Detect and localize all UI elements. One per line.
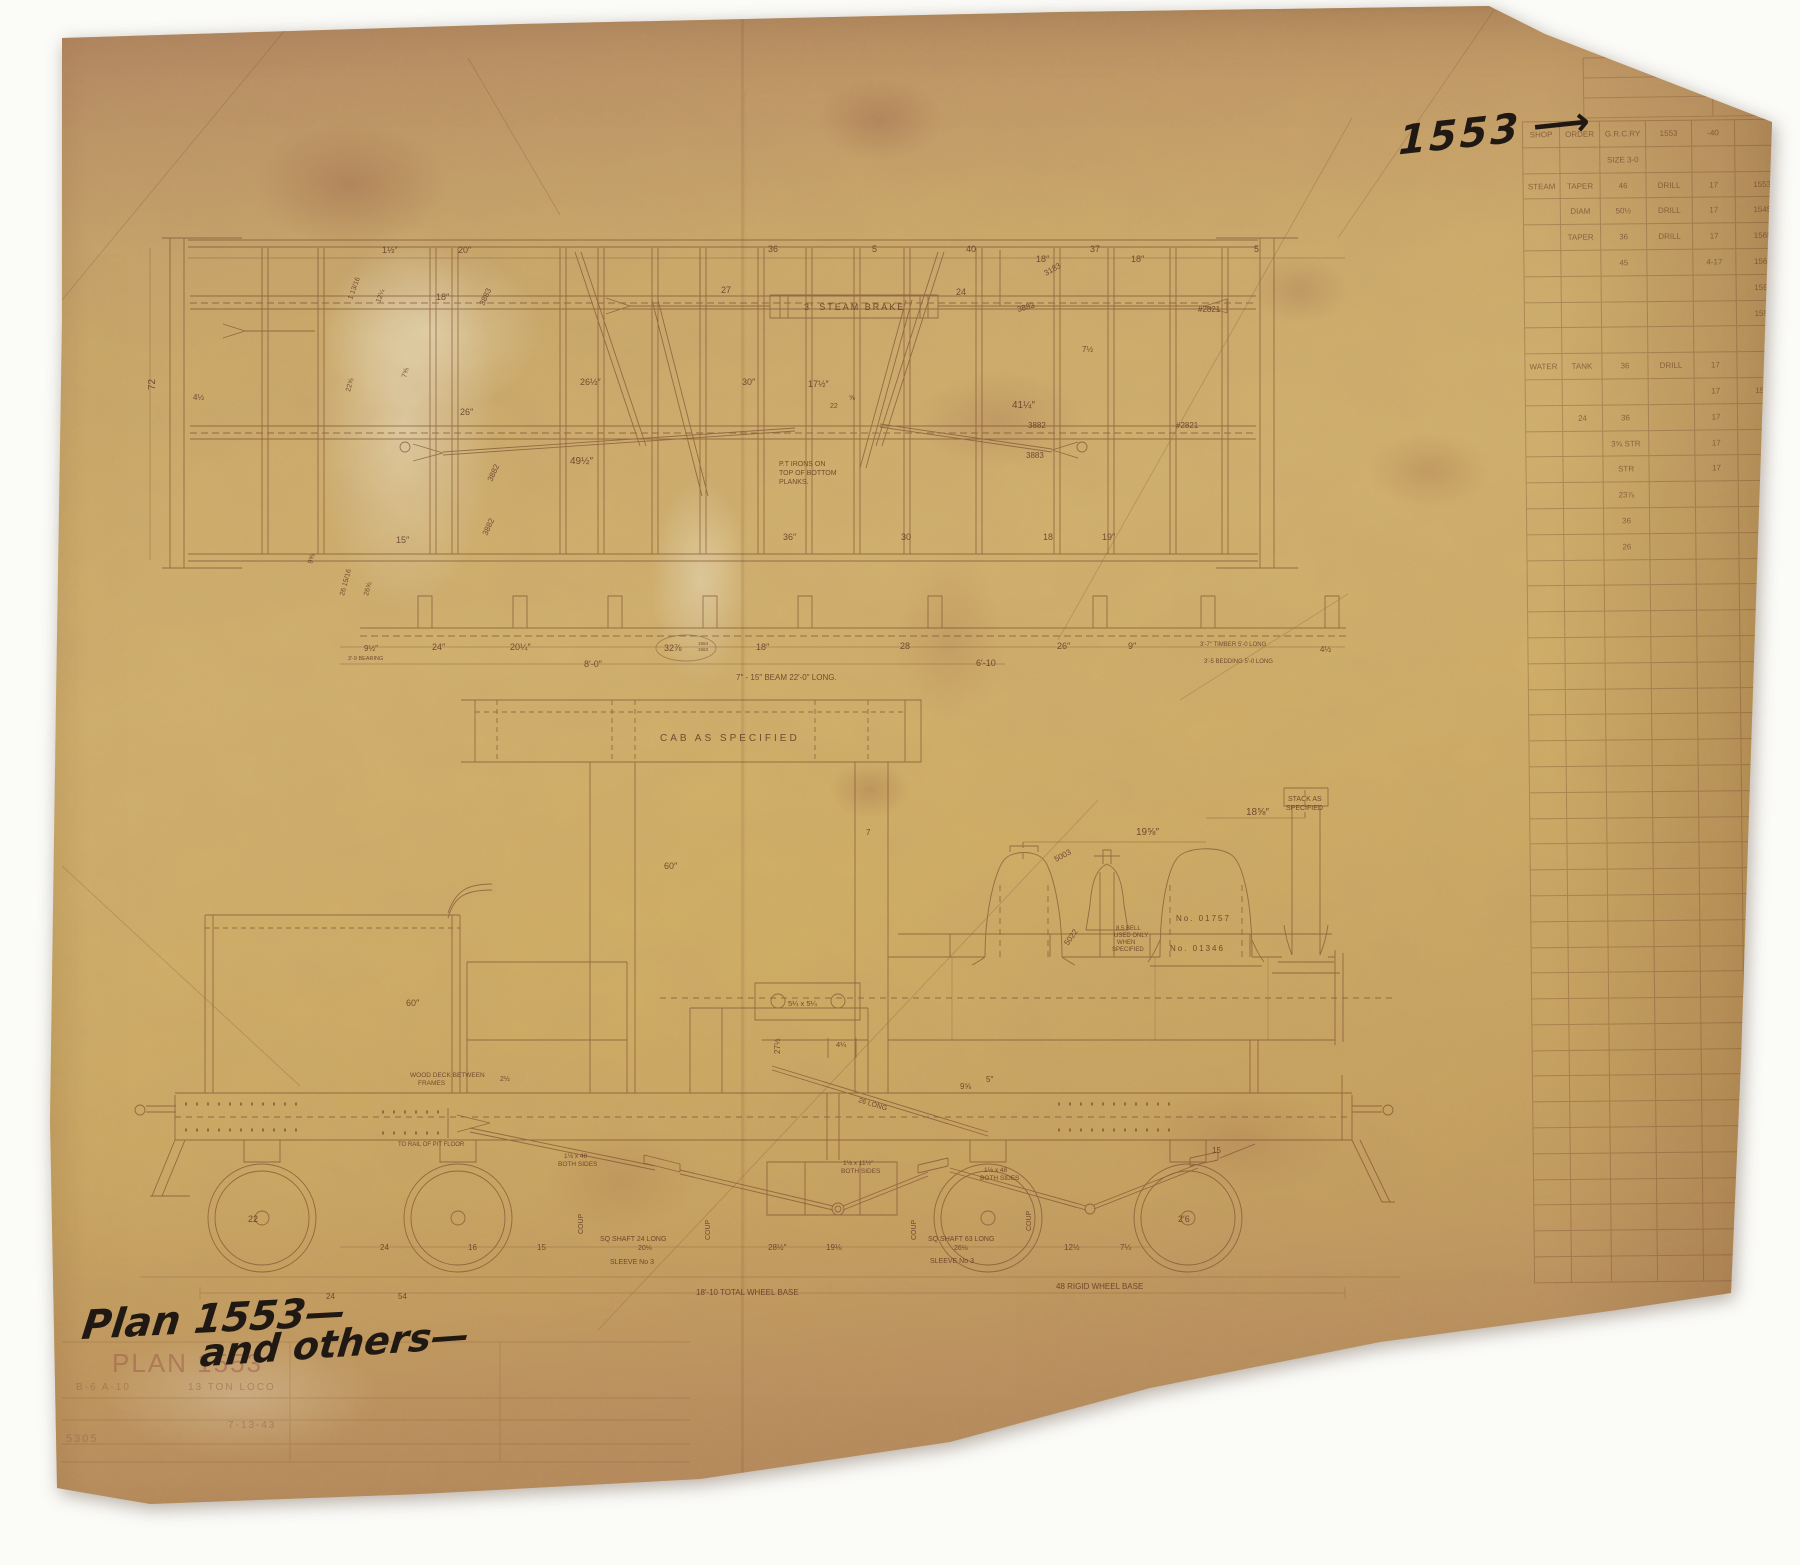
- table-cell: [1698, 713, 1741, 738]
- dimension-label: B-6 A-10: [76, 1382, 131, 1393]
- table-cell: [1525, 432, 1563, 457]
- table-cell: [1651, 585, 1697, 610]
- dimension-label: 60″: [664, 861, 678, 871]
- dimension-label: 8.5 BELL: [1116, 926, 1141, 932]
- table-cell: 45: [1601, 250, 1647, 275]
- table-cell: [1534, 1257, 1572, 1282]
- table-cell: [1564, 509, 1604, 534]
- dimension-label: 30″: [742, 377, 756, 387]
- dimension-label: COUP: [705, 1219, 712, 1240]
- table-cell: [1700, 920, 1743, 945]
- table-cell: [1569, 999, 1609, 1024]
- table-cell: [1605, 637, 1651, 662]
- table-row: 243617: [1525, 403, 1792, 432]
- table-cell: [1562, 276, 1602, 301]
- table-cell: [1608, 869, 1654, 894]
- dimension-label: 5¼ x 5¼: [788, 999, 818, 1008]
- dimension-label: 24: [380, 1243, 389, 1252]
- table-row: [1527, 584, 1794, 613]
- table-cell: [1745, 1100, 1799, 1125]
- dimension-label: 60″: [406, 998, 420, 1008]
- dimension-label: 1563: [698, 647, 709, 652]
- table-cell: [1525, 457, 1563, 482]
- table-cell: [1713, 76, 1795, 96]
- dimension-label: SLEEVE No 3: [610, 1259, 654, 1266]
- dimension-label: 5003: [1053, 847, 1073, 864]
- table-cell: [1702, 1126, 1745, 1151]
- table-cell: [1564, 483, 1604, 508]
- table-cell: DIAM: [1561, 199, 1601, 224]
- table-cell: [1648, 327, 1694, 352]
- table-cell: [1653, 766, 1699, 791]
- table-cell: [1745, 1048, 1799, 1073]
- dimension-label: 3′-7″ TIMBER 5′-0 LONG: [1200, 642, 1267, 648]
- table-cell: [1528, 690, 1566, 715]
- table-cell: [1696, 533, 1739, 558]
- table-cell: [1743, 919, 1797, 944]
- table-cell: [1654, 920, 1700, 945]
- table-cell: 36: [1602, 353, 1648, 378]
- table-row: [1527, 610, 1794, 639]
- table-cell: [1692, 146, 1735, 171]
- dimension-label: 3883: [478, 286, 494, 306]
- table-cell: [1533, 1205, 1571, 1230]
- table-cell: [1656, 1049, 1702, 1074]
- crease-lines: [62, 10, 1494, 1330]
- table-cell: [1698, 662, 1741, 687]
- dimension-label: 24″: [432, 642, 446, 652]
- table-row: [1532, 1074, 1799, 1103]
- dimension-label: 49½″: [570, 456, 593, 467]
- dimension-label: 5: [1254, 244, 1259, 254]
- dimension-label: 5: [872, 244, 877, 254]
- dimension-label: 18: [1043, 532, 1053, 542]
- table-cell: [1566, 715, 1606, 740]
- table-cell: [1742, 842, 1796, 867]
- table-cell: [1657, 1178, 1703, 1203]
- table-row: [1527, 558, 1794, 587]
- table-cell: [1607, 766, 1653, 791]
- dimension-label: SPECIFIED: [1112, 947, 1144, 953]
- dimension-label: 3882: [1028, 421, 1046, 430]
- table-cell: [1655, 946, 1701, 971]
- dimension-label: 6′-10: [976, 658, 996, 668]
- table-cell: [1738, 403, 1792, 428]
- table-cell: [1602, 302, 1648, 327]
- table-cell: [1737, 352, 1791, 377]
- table-cell: [1701, 946, 1744, 971]
- table-cell: [1697, 585, 1740, 610]
- dimension-label: TO RAIL OF PIT FLOOR: [398, 1142, 465, 1148]
- table-row: WATERTANK36DRILL17: [1524, 352, 1791, 381]
- table-cell: 1565: [1736, 223, 1790, 248]
- table-cell: [1602, 276, 1648, 301]
- dimension-label: BOTH SIDES: [558, 1161, 598, 1168]
- table-cell: [1699, 842, 1742, 867]
- table-cell: [1650, 533, 1696, 558]
- dimension-label: 22⅝: [345, 377, 355, 392]
- dimension-label: 3′ STEAM BRAKE: [804, 302, 905, 312]
- table-row: [1533, 1203, 1800, 1232]
- table-cell: [1527, 561, 1565, 586]
- table-cell: 36: [1601, 224, 1647, 249]
- table-cell: [1571, 1153, 1611, 1178]
- dimension-label: SQ SHAFT 63 LONG: [928, 1236, 994, 1243]
- table-cell: 1543: [1738, 378, 1792, 403]
- table-cell: [1650, 508, 1696, 533]
- dimension-label: WHEN: [1117, 940, 1135, 946]
- table-row: [1532, 1048, 1799, 1077]
- plan-dimension-labels: 1½″20″3654037518″273′ STEAM BRAKE2418″18…: [147, 244, 1331, 682]
- dimension-label: 7″ - 15″ BEAM 22′-0″ LONG.: [736, 673, 837, 682]
- table-cell: [1533, 1154, 1571, 1179]
- table-cell: [1746, 1203, 1800, 1228]
- table-cell: [1565, 638, 1605, 663]
- dimension-label: 26″: [1057, 641, 1071, 651]
- table-cell: 17: [1692, 172, 1735, 197]
- table-cell: 1561: [1736, 249, 1790, 274]
- table-cell: 23⅞: [1604, 482, 1650, 507]
- table-cell: 17: [1695, 456, 1738, 481]
- table-cell: [1530, 896, 1568, 921]
- arrow-icon: ⟶: [1531, 98, 1596, 150]
- table-cell: [1560, 147, 1600, 172]
- dimension-label: WOOD DECK BETWEEN: [410, 1072, 485, 1079]
- table-cell: [1696, 507, 1739, 532]
- table-cell: [1568, 921, 1608, 946]
- table-cell: [1703, 1178, 1746, 1203]
- table-cell: [1609, 972, 1655, 997]
- table-cell: [1562, 328, 1602, 353]
- dimension-label: COUP: [1026, 1210, 1033, 1231]
- dimension-label: 3882: [481, 516, 497, 536]
- table-cell: [1651, 559, 1697, 584]
- table-cell: [1526, 483, 1564, 508]
- table-cell: [1524, 277, 1562, 302]
- table-cell: [1701, 971, 1744, 996]
- table-row: [1528, 739, 1795, 768]
- table-cell: 17: [1693, 223, 1736, 248]
- dimension-label: 26 15/16: [339, 568, 353, 596]
- table-cell: [1742, 765, 1796, 790]
- dimension-label: 1½″: [382, 245, 399, 255]
- table-cell: [1608, 895, 1654, 920]
- table-cell: [1611, 1153, 1657, 1178]
- table-cell: [1702, 1075, 1745, 1100]
- table-row: 1592: [1524, 274, 1791, 303]
- table-cell: [1739, 532, 1793, 557]
- table-cell: [1699, 817, 1742, 842]
- dimension-label: 40: [966, 244, 976, 254]
- table-cell: [1700, 868, 1743, 893]
- table-cell: [1605, 560, 1651, 585]
- table-cell: [1704, 1255, 1747, 1280]
- table-row: [1531, 945, 1798, 974]
- dimension-label: 12½: [1064, 1243, 1080, 1252]
- table-cell: [1569, 973, 1609, 998]
- table-cell: [1607, 792, 1653, 817]
- table-cell: [1652, 662, 1698, 687]
- table-cell: [1655, 972, 1701, 997]
- table-cell: [1572, 1257, 1612, 1282]
- dimension-label: 22: [248, 1214, 258, 1224]
- dimension-label: 32⅞: [664, 643, 682, 653]
- table-cell: [1529, 767, 1567, 792]
- table-cell: [1609, 998, 1655, 1023]
- table-cell: 1553: [1735, 171, 1789, 196]
- table-cell: [1742, 816, 1796, 841]
- table-cell: [1651, 637, 1697, 662]
- dimension-label: 1⅛ x 48: [984, 1167, 1008, 1174]
- table-cell: [1741, 739, 1795, 764]
- table-cell: [1607, 818, 1653, 843]
- table-cell: [1648, 275, 1694, 300]
- dimension-label: 19″: [1102, 532, 1116, 542]
- table-cell: [1650, 482, 1696, 507]
- page-background: { "annotations": { "top_right_number": "…: [0, 0, 1800, 1565]
- dimension-label: 20¼″: [510, 642, 532, 652]
- table-cell: [1741, 713, 1795, 738]
- table-row: DIAM50½DRILL171545: [1523, 197, 1790, 226]
- table-cell: [1563, 380, 1603, 405]
- dimension-label: 24: [956, 287, 966, 297]
- table-cell: [1568, 895, 1608, 920]
- dimension-label: 7¼: [1120, 1243, 1131, 1252]
- table-cell: 1593: [1737, 300, 1791, 325]
- dimension-label: 27½: [773, 1038, 782, 1054]
- dimension-label: 18″: [1036, 254, 1050, 264]
- dimension-label: 28: [900, 641, 910, 651]
- table-row: [1532, 1100, 1799, 1129]
- table-row: [1524, 326, 1791, 355]
- table-cell: [1570, 1128, 1610, 1153]
- table-cell: [1565, 612, 1605, 637]
- table-cell: [1653, 791, 1699, 816]
- table-cell: [1561, 251, 1601, 276]
- dimension-label: BOTH SIDES: [980, 1175, 1020, 1182]
- table-cell: [1658, 1230, 1704, 1255]
- table-row: [1531, 1022, 1798, 1051]
- table-cell: [1703, 1204, 1746, 1229]
- table-cell: [1735, 145, 1789, 170]
- table-cell: [1747, 1229, 1800, 1254]
- dimension-label: 19⅛: [826, 1243, 842, 1252]
- table-cell: [1610, 1076, 1656, 1101]
- table-cell: [1523, 225, 1561, 250]
- table-cell: [1657, 1204, 1703, 1229]
- table-cell: [1743, 868, 1797, 893]
- table-cell: [1653, 817, 1699, 842]
- table-cell: [1740, 558, 1794, 583]
- table-cell: [1646, 146, 1692, 171]
- table-row: [1529, 816, 1796, 845]
- table-cell: DRILL: [1648, 353, 1694, 378]
- table-cell: [1570, 1076, 1610, 1101]
- table-cell: SIZE 3-0: [1600, 147, 1646, 172]
- dimension-label: No. 01346: [1170, 944, 1225, 953]
- dimension-label: SQ SHAFT 24 LONG: [600, 1236, 666, 1243]
- table-cell: [1651, 611, 1697, 636]
- dimension-label: 5″: [986, 1075, 993, 1084]
- table-cell: [1531, 999, 1569, 1024]
- table-cell: STR: [1603, 456, 1649, 481]
- table-cell: 3⅝ STR: [1603, 431, 1649, 456]
- table-cell: [1698, 739, 1741, 764]
- table-cell: [1746, 1177, 1800, 1202]
- table-cell: DRILL: [1647, 198, 1693, 223]
- dimension-label: 48 RIGID WHEEL BASE: [1056, 1282, 1143, 1291]
- dimension-label: 18″: [436, 292, 450, 302]
- table-cell: 36: [1603, 405, 1649, 430]
- dimension-label: 26½″: [580, 377, 602, 387]
- table-cell: [1527, 586, 1565, 611]
- table-cell: 17: [1695, 404, 1738, 429]
- table-cell: [1569, 947, 1609, 972]
- table-cell: [1647, 250, 1693, 275]
- dimension-label: 26⅛: [954, 1245, 968, 1252]
- table-cell: [1565, 586, 1605, 611]
- table-cell: 17: [1693, 198, 1736, 223]
- dimension-label: #2821: [1198, 305, 1221, 314]
- dimension-label: PLANKS.: [779, 479, 809, 486]
- table-row: [1533, 1177, 1800, 1206]
- dimension-label: 72: [147, 378, 158, 390]
- table-cell: [1530, 870, 1568, 895]
- table-cell: [1532, 1102, 1570, 1127]
- table-cell: [1571, 1205, 1611, 1230]
- table-cell: [1567, 844, 1607, 869]
- table-cell: [1657, 1152, 1703, 1177]
- dimension-label: 20″: [458, 245, 472, 255]
- table-cell: [1694, 327, 1737, 352]
- table-cell: [1652, 740, 1698, 765]
- table-cell: -40: [1692, 120, 1735, 145]
- table-cell: [1699, 791, 1742, 816]
- table-cell: [1528, 715, 1566, 740]
- table-cell: [1610, 1101, 1656, 1126]
- table-cell: WATER: [1524, 354, 1562, 379]
- table-cell: [1567, 792, 1607, 817]
- dimension-label: 41¼″: [1012, 399, 1035, 411]
- table-cell: [1740, 610, 1794, 635]
- table-cell: [1744, 971, 1798, 996]
- dimension-label: SPECIFIED: [1286, 805, 1323, 812]
- dimension-label: STACK AS: [1288, 796, 1322, 803]
- table-cell: [1563, 431, 1603, 456]
- table-row: [1529, 765, 1796, 794]
- table-cell: [1694, 275, 1737, 300]
- dimension-label: 9½″: [364, 644, 378, 653]
- dimension-label: USED ONLY: [1114, 933, 1148, 939]
- table-cell: 17: [1695, 430, 1738, 455]
- table-cell: [1583, 57, 1713, 78]
- dimension-label: COUP: [578, 1213, 585, 1234]
- dimension-label: 9⅝: [307, 553, 316, 564]
- table-cell: [1572, 1231, 1612, 1256]
- table-cell: [1531, 973, 1569, 998]
- table-cell: [1531, 947, 1569, 972]
- table-cell: [1532, 1128, 1570, 1153]
- dimension-label: 3′-5 BEDDING 5′-0 LONG: [1204, 659, 1273, 665]
- table-row: [1527, 636, 1794, 665]
- table-cell: [1702, 1049, 1745, 1074]
- dimension-label: 15: [537, 1243, 546, 1252]
- dimension-label: 36: [768, 244, 778, 254]
- table-row: [1530, 868, 1797, 897]
- table-cell: [1524, 303, 1562, 328]
- table-row: STEAMTAPER46DRILL171553: [1522, 171, 1789, 200]
- dimension-label: 8′-0″: [584, 659, 603, 669]
- table-cell: [1583, 77, 1713, 98]
- table-cell: TAPER: [1561, 225, 1601, 250]
- elevation-drawing: [135, 700, 1400, 1299]
- table-cell: [1656, 1101, 1702, 1126]
- dimension-label: CAB AS SPECIFIED: [660, 733, 800, 744]
- table-cell: [1658, 1256, 1704, 1281]
- table-cell: [1569, 1024, 1609, 1049]
- table-cell: [1611, 1179, 1657, 1204]
- table-cell: [1701, 997, 1744, 1022]
- table-cell: DRILL: [1647, 224, 1693, 249]
- table-cell: [1606, 689, 1652, 714]
- table-cell: [1565, 560, 1605, 585]
- table-row: [1528, 713, 1795, 742]
- table-cell: [1525, 380, 1563, 405]
- table-cell: [1744, 1022, 1798, 1047]
- dimension-label: 36″: [783, 532, 797, 542]
- plan-view-drawing: [150, 238, 1346, 664]
- table-cell: [1697, 610, 1740, 635]
- dimension-label: 22: [830, 403, 838, 410]
- table-row: [1533, 1151, 1800, 1180]
- table-cell: [1697, 559, 1740, 584]
- table-cell: 50½: [1601, 199, 1647, 224]
- dimension-label: 28½″: [768, 1243, 787, 1252]
- dimension-label: 15″: [396, 535, 410, 545]
- dimension-label: 3′-9 BEARING: [348, 656, 383, 662]
- table-row: 36: [1526, 507, 1793, 536]
- table-cell: [1523, 199, 1561, 224]
- table-cell: [1738, 429, 1792, 454]
- table-cell: [1699, 765, 1742, 790]
- table-cell: [1656, 1075, 1702, 1100]
- table-cell: [1654, 869, 1700, 894]
- dimension-label: 1⅛ x 48: [564, 1153, 588, 1160]
- table-cell: [1566, 741, 1606, 766]
- dimension-label: 2½: [500, 1075, 510, 1083]
- table-cell: [1746, 1151, 1800, 1176]
- table-row: 171543: [1525, 378, 1792, 407]
- corner-mini-table: [1583, 55, 1796, 119]
- table-cell: [1702, 1100, 1745, 1125]
- table-cell: [1653, 843, 1699, 868]
- table-cell: [1744, 997, 1798, 1022]
- dimension-label: 4½: [1320, 645, 1331, 654]
- table-cell: [1656, 1127, 1702, 1152]
- dimension-label: 3883: [1026, 451, 1044, 460]
- table-cell: [1605, 611, 1651, 636]
- table-cell: [1607, 843, 1653, 868]
- dimension-label: 19⅝″: [1136, 827, 1159, 838]
- table-row: [1583, 76, 1795, 99]
- dimension-label: #2821: [1176, 421, 1199, 430]
- table-cell: [1654, 895, 1700, 920]
- table-cell: 36: [1604, 508, 1650, 533]
- table-cell: [1533, 1180, 1571, 1205]
- table-row: TAPER36DRILL171565: [1523, 223, 1790, 252]
- table-cell: [1562, 302, 1602, 327]
- dimension-label: 1554: [698, 641, 709, 646]
